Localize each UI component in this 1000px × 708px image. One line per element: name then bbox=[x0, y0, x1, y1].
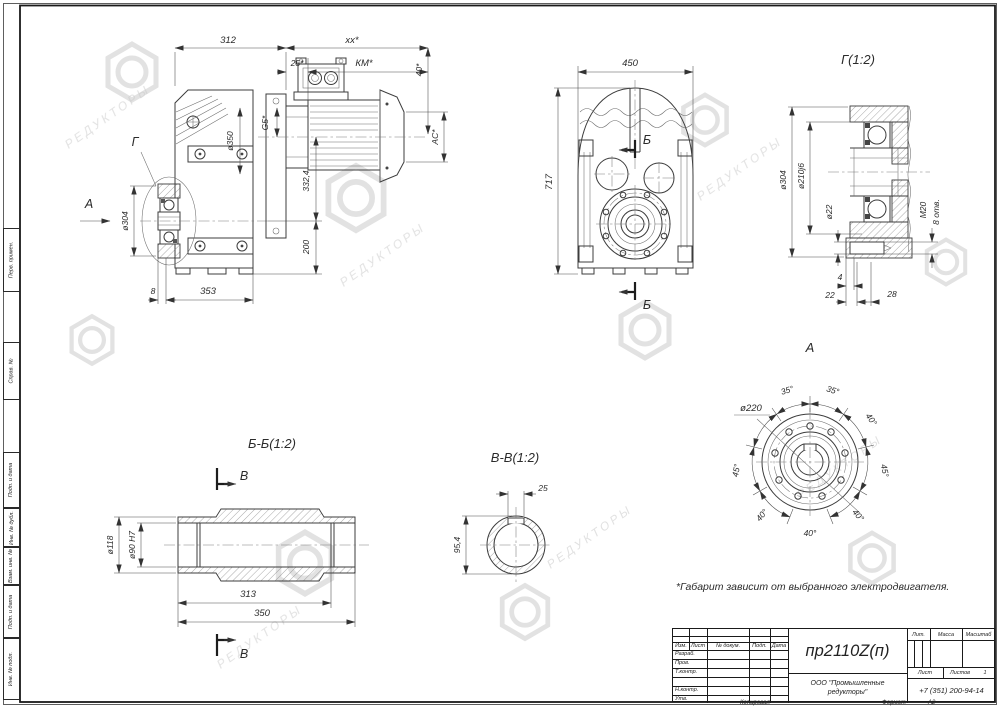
stamp-row-nkontr: Н.контр. bbox=[673, 686, 709, 695]
stamp-masshtab-label: Масштаб bbox=[962, 629, 995, 640]
angle-40-sw: 40° bbox=[754, 506, 770, 523]
section-mark-b-top: Б bbox=[643, 133, 651, 147]
margin-label: Подп. и дата bbox=[9, 594, 15, 628]
stamp-company-line1: ООО "Промышленные bbox=[811, 679, 885, 688]
dim-25-key: 25 bbox=[537, 483, 548, 493]
dim-313: 313 bbox=[240, 589, 257, 600]
margin-label: Инв. № дубл. bbox=[9, 511, 15, 545]
margin-box-inv-dubl: Инв. № дубл. bbox=[3, 508, 20, 547]
stamp-massa-label: Масса bbox=[930, 629, 962, 640]
stamp-list-label: Лист bbox=[907, 667, 943, 678]
dim-d22: ø22 bbox=[824, 204, 834, 219]
dim-d220: ø220 bbox=[740, 403, 762, 414]
dim-3324: 332,4 bbox=[301, 170, 311, 192]
stamp-listov-label: Листов bbox=[943, 667, 977, 678]
view-detail-g: Г(1:2) ø304 ø210j6 ø22 M20 8 отв. bbox=[778, 52, 941, 306]
dim-8otv: 8 отв. bbox=[931, 199, 941, 225]
dim-km: КМ* bbox=[355, 58, 373, 69]
dim-d304: ø304 bbox=[120, 211, 130, 231]
angle-45-e: 45° bbox=[879, 463, 891, 478]
stamp-col-data: Дата bbox=[770, 642, 788, 650]
format-value: А2 bbox=[928, 700, 935, 706]
stamp-col-doc: № докум. bbox=[707, 642, 749, 650]
stamp-col-izm: Изм. bbox=[673, 642, 689, 650]
stamp-row-utv: Утв. bbox=[673, 695, 709, 704]
stamp-col-podp: Подп. bbox=[749, 642, 770, 650]
margin-label: Подп. и дата bbox=[9, 463, 15, 497]
dim-detail-d304: ø304 bbox=[778, 170, 788, 190]
footnote: *Габарит зависит от выбранного электродв… bbox=[676, 581, 949, 593]
dim-d118: ø118 bbox=[105, 535, 115, 554]
stamp-listov-value: 1 bbox=[977, 667, 993, 678]
section-bb-title: Б-Б(1:2) bbox=[248, 436, 296, 451]
dim-m20: M20 bbox=[918, 201, 928, 218]
margin-box-vzam-inv: Взам. инв. № bbox=[3, 547, 20, 585]
view-side: Г А 312 xx* 25* КМ* 40* AC* bbox=[80, 35, 448, 304]
margin-box-sprav: Справ. № bbox=[3, 342, 20, 400]
dim-8: 8 bbox=[151, 286, 156, 296]
title-block: Изм. Лист № докум. Подп. Дата Разраб. Пр… bbox=[672, 628, 995, 702]
stamp-row-prov: Пров. bbox=[673, 659, 709, 668]
stamp-company: ООО "Промышленные редукторы" bbox=[788, 673, 907, 703]
dim-717: 717 bbox=[544, 173, 555, 190]
drawing-sheet: РЕДУКТОРЫ РЕДУКТОРЫ РЕДУКТОРЫ РЕДУКТОРЫ … bbox=[0, 0, 1000, 708]
stamp-col-list: Лист bbox=[689, 642, 707, 650]
format-label: Формат bbox=[882, 700, 906, 706]
section-mark-v-bottom: В bbox=[240, 647, 248, 661]
detail-g-title: Г(1:2) bbox=[841, 52, 875, 67]
view-front: 450 717 Б Б bbox=[544, 58, 693, 312]
dim-4: 4 bbox=[838, 272, 843, 282]
dim-40: 40* bbox=[414, 63, 424, 76]
dim-350: 350 bbox=[254, 608, 271, 619]
dim-28: 28 bbox=[886, 289, 897, 299]
angle-35-right: 35° bbox=[825, 383, 841, 396]
margin-box-podp-data-1: Подп. и дата bbox=[3, 452, 20, 508]
view-arrow-a-label: А bbox=[84, 197, 93, 211]
stamp-phone: +7 (351) 200-94-14 bbox=[907, 678, 996, 703]
stamp-doc-number: пр2110Z(п) bbox=[788, 629, 907, 673]
margin-label: Взам. инв. № bbox=[9, 549, 15, 583]
stamp-lit-label: Лит. bbox=[907, 629, 930, 640]
section-mark-b-bottom: Б bbox=[643, 298, 651, 312]
watermark-text: РЕДУКТОРЫ bbox=[62, 82, 153, 152]
stamp-row-razrab: Разраб. bbox=[673, 650, 709, 659]
stamp-row-tkontr: Т.контр. bbox=[673, 668, 709, 677]
watermark-logos bbox=[72, 44, 966, 639]
margin-label: Перв. примен. bbox=[9, 242, 15, 279]
dim-g5: G5* bbox=[260, 115, 270, 130]
margin-label: Инв. № подл. bbox=[9, 652, 15, 686]
dim-353: 353 bbox=[200, 286, 217, 297]
stamp-company-line2: редукторы" bbox=[828, 688, 868, 697]
dim-d210j6: ø210j6 bbox=[796, 163, 806, 189]
dim-312: 312 bbox=[220, 35, 237, 46]
margin-box-inv-podl: Инв. № подл. bbox=[3, 638, 20, 700]
angle-45-w: 45° bbox=[730, 463, 742, 478]
angle-40-se: 40° bbox=[850, 507, 866, 524]
angle-40-s: 40° bbox=[804, 528, 817, 538]
dim-25: 25* bbox=[290, 58, 304, 68]
dim-d90h7: ø90 H7 bbox=[127, 531, 137, 559]
drawing-canvas: РЕДУКТОРЫ РЕДУКТОРЫ РЕДУКТОРЫ РЕДУКТОРЫ … bbox=[0, 0, 1000, 708]
margin-label: Справ. № bbox=[9, 359, 15, 384]
dim-d350: ø350 bbox=[225, 131, 235, 151]
kopiroval-label: Копировал bbox=[740, 700, 770, 706]
dim-xx: xx* bbox=[344, 35, 359, 46]
watermark-text: РЕДУКТОРЫ bbox=[544, 502, 635, 572]
dim-ac: AC* bbox=[430, 129, 440, 146]
view-section-vv: В-В(1:2) 25 95,4 bbox=[452, 450, 552, 583]
dim-954: 95,4 bbox=[452, 536, 462, 553]
section-vv-title: В-В(1:2) bbox=[491, 450, 539, 465]
margin-box-perv-primen: Перв. примен. bbox=[3, 228, 20, 292]
angle-40-ne: 40° bbox=[864, 411, 880, 428]
section-mark-v-top: В bbox=[240, 469, 248, 483]
detail-callout-g: Г bbox=[132, 135, 140, 149]
view-a-title: А bbox=[805, 340, 815, 355]
dim-200: 200 bbox=[301, 240, 311, 255]
dim-22: 22 bbox=[824, 290, 835, 300]
margin-box-podp-data-2: Подп. и дата bbox=[3, 585, 20, 638]
dim-450: 450 bbox=[622, 58, 639, 69]
angle-35-left: 35° bbox=[780, 383, 796, 396]
